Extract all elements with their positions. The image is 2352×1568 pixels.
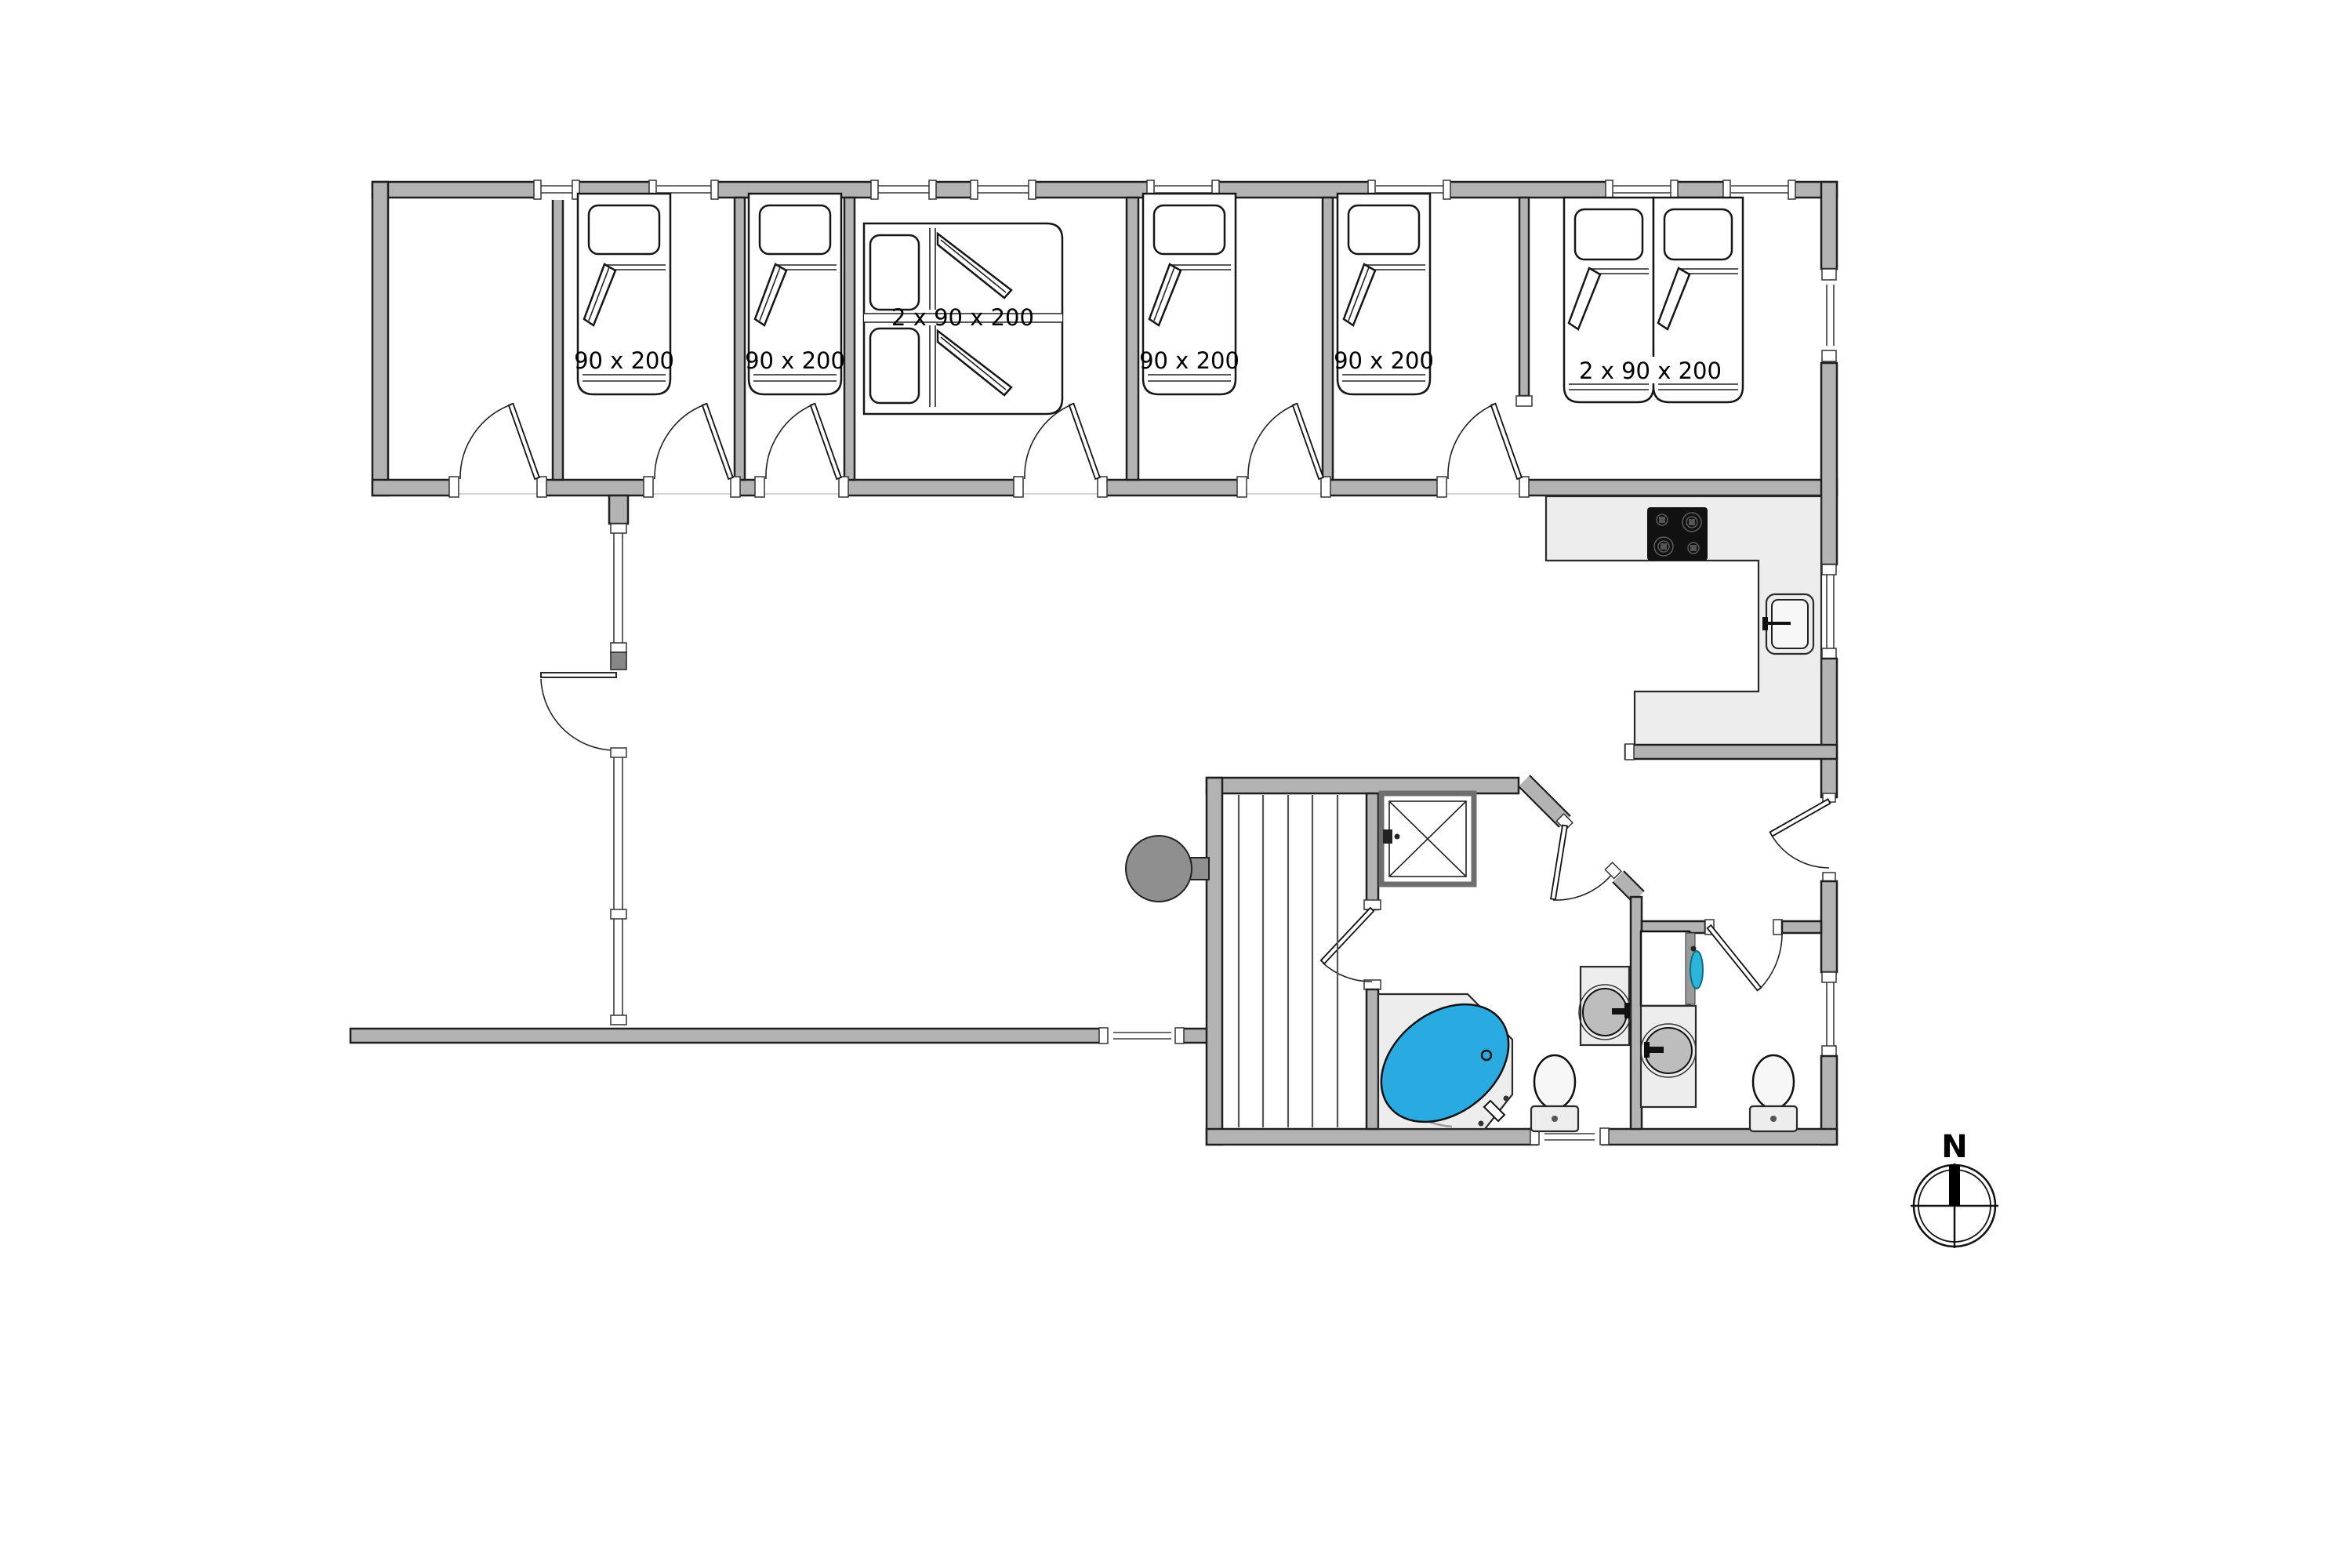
window-icon: [1822, 564, 1836, 659]
shower: [1381, 793, 1474, 884]
wall-wc-north-right: [1782, 921, 1821, 933]
wall-sauna-east-upper: [1367, 793, 1378, 909]
bed-pillow: [760, 205, 830, 254]
window-icon: [534, 180, 579, 200]
toilet-wc: [1750, 1055, 1797, 1131]
bedroom-3-bed: 90 x 200: [745, 194, 845, 394]
door-jamb: [1364, 900, 1381, 909]
heater-icon: [1126, 836, 1192, 902]
kitchen-sink: [1762, 594, 1813, 654]
door-jamb: [1773, 920, 1782, 935]
bed-pillow: [1664, 209, 1732, 260]
wc-door: [1708, 925, 1782, 990]
window-icon: [1822, 269, 1836, 361]
wall-divider-4: [1127, 198, 1138, 480]
door-room-3: [755, 404, 848, 499]
wall-endcap: [1625, 744, 1634, 760]
wall-kitchen-south: [1625, 745, 1837, 759]
sauna-heater: [1126, 836, 1209, 902]
bed-size-label: 2 x 90 x 200: [891, 304, 1034, 331]
bathroom-block: [1207, 775, 1837, 1146]
window-icon: [1099, 1027, 1184, 1044]
bed-pillow: [870, 235, 919, 310]
bedroom-7-double-bed: 2 x 90 x 200: [1564, 198, 1743, 402]
wall-divider-3: [844, 198, 855, 480]
wall-sauna-east-lower: [1367, 989, 1378, 1129]
window-icon: [1822, 972, 1836, 1056]
compass-north-pointer: [1949, 1165, 1960, 1206]
terrace-door: [541, 673, 616, 750]
door-room-2: [644, 404, 740, 499]
hall-door: [1770, 799, 1831, 868]
door-jamb: [1823, 873, 1835, 881]
window-icon: [871, 180, 936, 200]
bed-size-label: 2 x 90 x 200: [1579, 358, 1722, 384]
bathroom-door: [1551, 826, 1613, 901]
sink-main-bath: [1579, 967, 1631, 1045]
bed-pillow: [1575, 209, 1642, 260]
bed-size-label: 90 x 200: [1334, 347, 1434, 374]
window-icon: [971, 180, 1036, 200]
door-room-1: [449, 404, 546, 499]
wall-diagonal-1: [1524, 781, 1565, 822]
wall-diagonal-2: [1618, 877, 1639, 897]
wall-divider-6: [1519, 198, 1529, 396]
west-glazed-wall: [541, 495, 628, 1025]
compass-rose: N: [1911, 1129, 1998, 1248]
washer-door-icon: [1690, 951, 1703, 989]
washing-machine: [1641, 931, 1703, 1006]
bed-pillow: [589, 205, 659, 254]
wall-south-living: [350, 1027, 1210, 1044]
door-room-5: [1237, 404, 1330, 499]
compass-north-label: N: [1941, 1129, 1967, 1165]
door-room-4: [1014, 404, 1107, 499]
wall-bath-south: [1207, 1129, 1837, 1145]
door-room-6: [1437, 404, 1529, 499]
wall-divider-2: [735, 198, 745, 480]
bedroom-6-bed: 90 x 200: [1334, 194, 1434, 394]
bed-pillow: [1154, 205, 1225, 254]
bed-size-label: 90 x 200: [574, 347, 674, 374]
toilet-main-bath: [1531, 1055, 1578, 1131]
bedroom-5-bed: 90 x 200: [1139, 194, 1240, 394]
corner-bathtub: [1359, 980, 1532, 1146]
wall-divider-5: [1323, 198, 1333, 480]
bed-pillow: [1348, 205, 1419, 254]
wall-divider-6-endcap: [1516, 396, 1532, 406]
bed-size-label: 90 x 200: [1139, 347, 1240, 374]
wall-bath-west: [1207, 778, 1222, 1145]
bedroom-4-double-bed: 2 x 90 x 200: [864, 223, 1062, 414]
toilet-bowl: [1753, 1055, 1794, 1109]
toilet-bowl: [1534, 1055, 1575, 1109]
shower-head-icon: [1383, 829, 1392, 844]
bedroom-2-bed: 90 x 200: [574, 194, 674, 394]
floor-plan: 90 x 200 90 x 200 2 x 90 x 200 90 x 200: [0, 0, 2352, 1568]
floor-plan-page: 90 x 200 90 x 200 2 x 90 x 200 90 x 200: [0, 0, 2352, 1568]
bed-pillow: [870, 328, 919, 403]
sauna-door: [1321, 908, 1374, 982]
sink-wc: [1641, 1006, 1696, 1107]
kitchen: [1546, 496, 1837, 760]
wall-west-bedrooms: [372, 182, 388, 495]
door-hinge-block: [611, 652, 626, 670]
wall-east: [1821, 182, 1837, 1145]
bed-size-label: 90 x 200: [745, 347, 845, 374]
wall-divider-1: [553, 198, 563, 480]
